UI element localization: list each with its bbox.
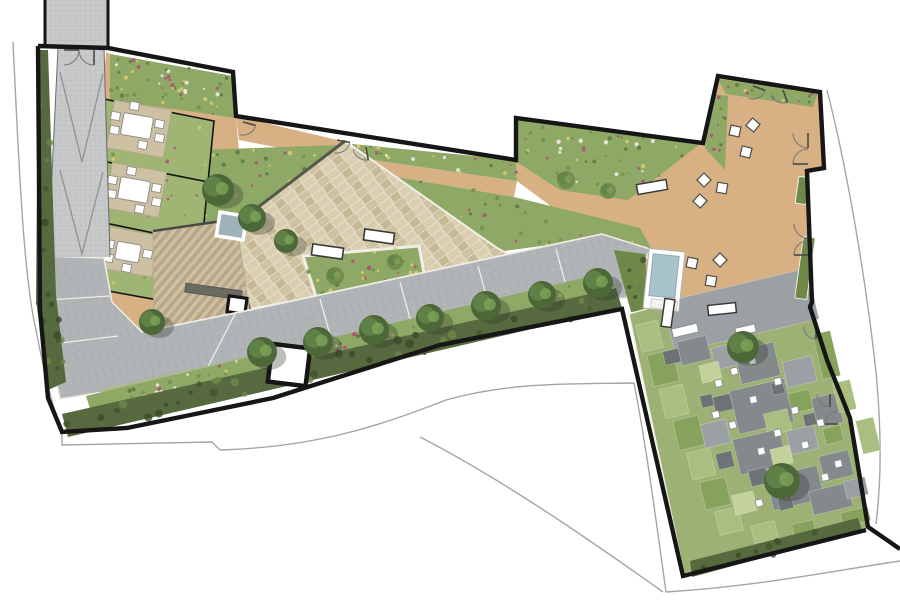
planting-speckle <box>147 79 149 81</box>
planting-speckle <box>719 107 721 109</box>
courtyard-seat-cube <box>791 406 799 414</box>
planting-speckle <box>615 172 619 176</box>
planting-speckle <box>751 89 753 91</box>
planting-speckle <box>604 140 608 144</box>
planting-speckle <box>624 147 628 151</box>
planting-speckle <box>419 181 422 184</box>
shrub-icon <box>557 171 575 189</box>
courtyard-seat-cube <box>730 367 738 375</box>
planting-speckle <box>184 91 187 94</box>
tree-canopy-highlight <box>260 345 272 357</box>
planting-speckle <box>225 76 229 80</box>
planting-speckle <box>169 79 172 82</box>
planting-speckle <box>575 181 577 183</box>
planting-speckle <box>675 146 677 148</box>
planting-speckle <box>525 151 528 154</box>
planting-speckle <box>306 269 311 274</box>
patio-tables-item <box>120 113 153 140</box>
planting-speckle <box>503 171 507 175</box>
planting-speckle <box>619 159 622 162</box>
planting-speckle <box>120 88 122 90</box>
planting-speckle <box>680 154 683 157</box>
planting-speckle <box>45 292 51 298</box>
planting-speckle <box>356 334 360 338</box>
planting-speckle <box>515 204 519 208</box>
planting-speckle <box>119 400 128 409</box>
planting-speckle <box>544 219 548 223</box>
terrace-seat-cubes-item <box>686 257 698 269</box>
planting-speckle <box>361 271 364 274</box>
tree-canopy-highlight <box>484 299 496 311</box>
planting-speckle <box>754 549 758 553</box>
planting-speckle <box>483 213 487 217</box>
planting-speckle <box>519 232 523 236</box>
patio-tables-item <box>115 241 142 263</box>
planting-speckle <box>156 383 159 386</box>
planting-speckle <box>443 156 446 159</box>
tree-canopy-highlight <box>394 258 400 264</box>
planting-speckle <box>136 60 138 62</box>
patio-tables-item <box>117 177 150 204</box>
planting-speckle <box>377 146 381 150</box>
patio-chairs-item <box>154 119 164 128</box>
planting-speckle <box>158 83 160 85</box>
planting-speckle <box>499 204 501 206</box>
patio-chairs-item <box>151 183 161 192</box>
planting-speckle <box>566 166 570 170</box>
planting-speckle <box>168 380 172 384</box>
planting-speckle <box>495 196 499 200</box>
planting-speckle <box>582 148 586 152</box>
planting-speckle <box>146 62 149 65</box>
planting-speckle <box>717 96 721 100</box>
planting-speckle <box>208 373 210 375</box>
planting-speckle <box>137 65 141 69</box>
planting-speckle <box>116 87 119 90</box>
planting-speckle <box>448 330 457 339</box>
planting-speckle <box>509 164 511 166</box>
planting-speckle <box>394 247 397 250</box>
terrace-seat-cubes-item <box>740 146 752 158</box>
planting-speckle <box>640 257 646 263</box>
planting-speckle <box>224 373 227 376</box>
planting-speckle <box>511 316 518 323</box>
patio-chairs-item <box>109 125 119 134</box>
planting-speckle <box>164 77 167 80</box>
planting-speckle <box>139 383 141 385</box>
planting-speckle <box>746 91 749 94</box>
terrace-seat-cubes-item <box>729 125 741 137</box>
planting-speckle <box>625 140 629 144</box>
patio-chairs-item <box>129 101 139 110</box>
courtyard-seat-cube <box>816 419 824 427</box>
planting-speckle <box>197 374 201 378</box>
planting-speckle <box>469 212 472 215</box>
planting-speckle <box>559 147 562 150</box>
planting-speckle <box>124 76 128 80</box>
tree-canopy-highlight <box>284 235 294 245</box>
planting-speckle <box>456 168 460 172</box>
planting-speckle <box>288 151 293 156</box>
planting-speckle <box>126 94 129 97</box>
planting-speckle <box>181 98 183 100</box>
planting-speckle <box>259 174 262 177</box>
planting-speckle <box>489 164 493 168</box>
planting-speckle <box>605 155 607 157</box>
planting-speckle <box>633 295 637 299</box>
shrub-icon <box>326 267 344 285</box>
planting-speckle <box>405 339 414 348</box>
planting-speckle <box>556 172 559 175</box>
planting-speckle <box>311 370 319 378</box>
planting-speckle <box>210 102 213 105</box>
planting-speckle <box>620 136 622 138</box>
planting-speckle <box>637 167 640 170</box>
planting-speckle <box>167 75 171 79</box>
planting-speckle <box>131 387 135 391</box>
courtyard-seat-cube <box>728 421 736 429</box>
planting-speckle <box>409 270 413 274</box>
planting-speckle <box>45 158 49 162</box>
planting-speckle <box>114 408 120 414</box>
planting-speckle <box>235 360 237 362</box>
planting-speckle <box>41 219 49 227</box>
planting-speckle <box>724 117 727 120</box>
planting-speckle <box>474 158 477 161</box>
planting-speckle <box>558 151 561 154</box>
terrace-benches-item <box>708 303 737 316</box>
planting-speckle <box>224 370 227 373</box>
planting-speckle <box>133 93 137 97</box>
planting-speckle <box>712 148 716 152</box>
patio-chairs-item <box>137 140 147 149</box>
planting-speckle <box>141 391 145 395</box>
planting-speckle <box>182 82 185 85</box>
planting-speckle <box>128 389 132 393</box>
planting-speckle <box>222 163 226 167</box>
planting-speckle <box>568 285 571 288</box>
planting-speckle <box>658 174 661 177</box>
planting-speckle <box>111 153 115 157</box>
planting-speckle <box>374 251 377 254</box>
courtyard-cell-g3 <box>715 451 734 470</box>
planting-speckle <box>203 88 205 90</box>
courtyard-cell-g3 <box>700 394 714 408</box>
planting-speckle <box>255 161 258 164</box>
patio-chairs-item <box>134 204 144 213</box>
planting-speckle <box>411 157 415 161</box>
planting-speckle <box>196 194 199 197</box>
planting-speckle <box>203 97 207 101</box>
planting-speckle <box>351 259 355 263</box>
planting-speckle <box>548 241 551 244</box>
planting-speckle <box>579 139 583 143</box>
planting-speckle <box>617 135 620 138</box>
planting-speckle <box>410 263 413 266</box>
planting-speckle <box>63 420 70 427</box>
planting-speckle <box>580 234 582 236</box>
planting-speckle <box>529 131 532 134</box>
planting-speckle <box>538 240 542 244</box>
tree-canopy-highlight <box>150 316 160 326</box>
courtyard-seat-cube <box>712 410 720 418</box>
courtyard-seat-cube <box>714 379 722 387</box>
planting-speckle <box>165 68 168 71</box>
ramp-walk-top-shape <box>45 0 108 47</box>
planting-speckle <box>55 366 59 370</box>
planting-speckle <box>515 171 518 174</box>
planting-speckle <box>218 365 221 368</box>
planting-speckle <box>631 241 633 243</box>
planting-speckle <box>212 113 214 115</box>
planting-speckle <box>640 271 645 276</box>
planting-speckle <box>166 179 168 181</box>
planting-speckle <box>412 326 415 329</box>
planting-speckle <box>641 164 645 168</box>
planting-speckle <box>54 332 62 340</box>
courtyard-seat-cube <box>834 460 842 468</box>
planting-speckle <box>719 143 722 146</box>
planting-speckle <box>589 131 591 133</box>
planting-speckle <box>251 185 253 187</box>
planting-speckle <box>42 248 46 252</box>
planting-speckle <box>541 138 546 143</box>
planting-speckle <box>264 157 268 161</box>
planting-speckle <box>651 139 655 143</box>
planting-speckle <box>173 147 176 150</box>
planting-speckle <box>316 279 319 282</box>
planting-speckle <box>379 153 381 155</box>
planting-speckle <box>592 160 596 164</box>
tree-canopy-highlight <box>428 311 439 322</box>
planting-speckle <box>183 215 185 217</box>
planting-speckle <box>220 93 223 96</box>
terrace-seat-cubes-item <box>705 275 717 287</box>
tree-canopy-highlight <box>372 323 384 335</box>
planting-speckle <box>366 357 372 363</box>
planting-speckle <box>43 186 49 192</box>
planting-speckle <box>717 124 719 126</box>
planting-speckle <box>167 198 170 201</box>
planting-speckle <box>766 543 773 550</box>
planting-speckle <box>352 332 356 336</box>
planting-speckle <box>641 180 644 183</box>
planting-speckle <box>132 58 136 62</box>
planting-speckle <box>357 144 361 148</box>
patio-chairs-item <box>151 197 161 206</box>
planting-speckle <box>621 172 625 176</box>
planting-speckle <box>215 92 219 96</box>
planting-speckle <box>385 154 388 157</box>
planting-speckle <box>375 151 378 154</box>
planting-speckle <box>556 140 561 145</box>
planting-speckle <box>204 164 206 166</box>
planting-speckle <box>197 381 203 387</box>
patio-chairs-item <box>121 263 131 272</box>
planting-speckle <box>468 209 471 212</box>
planting-speckle <box>209 388 217 396</box>
planting-speckle <box>484 203 487 206</box>
planting-speckle <box>109 88 113 92</box>
tree-canopy-highlight <box>741 339 754 352</box>
planting-speckle <box>412 332 419 339</box>
planting-speckle <box>235 150 240 155</box>
planting-speckle <box>164 403 168 407</box>
planting-speckle <box>98 414 105 421</box>
planting-speckle <box>284 151 287 154</box>
planting-speckle <box>218 82 222 86</box>
planting-speckle <box>596 183 599 186</box>
planting-speckle <box>216 106 218 108</box>
planting-speckle <box>212 154 215 157</box>
planting-speckle <box>627 172 629 174</box>
planting-speckle <box>414 265 417 268</box>
terrace-seat-cubes-item <box>716 182 728 194</box>
courtyard-seat-cube <box>774 377 782 385</box>
courtyard-cell-g3 <box>803 412 817 426</box>
patio-chairs-item <box>110 111 120 120</box>
site-plan-stage: rooftop-garden-landscape-site-plan <box>0 0 900 600</box>
planting-speckle <box>808 101 811 104</box>
tree-canopy-highlight <box>607 187 613 193</box>
planting-speckle <box>252 149 255 152</box>
planting-speckle <box>736 553 741 558</box>
planting-speckle <box>377 270 379 272</box>
planting-speckle <box>634 278 639 283</box>
planting-speckle <box>397 272 399 274</box>
planting-speckle <box>302 155 305 158</box>
planting-speckle <box>265 172 268 175</box>
planting-speckle <box>120 94 124 98</box>
tree-canopy-highlight <box>316 335 328 347</box>
tree-canopy-highlight <box>250 211 261 222</box>
tree-canopy-highlight <box>540 288 551 299</box>
planting-speckle <box>188 391 192 395</box>
planting-speckle <box>165 160 169 164</box>
planting-speckle <box>56 338 61 343</box>
planting-speckle <box>143 277 145 279</box>
ramp-walk-top <box>45 0 108 47</box>
planting-speckle <box>541 126 545 130</box>
planting-speckle <box>524 211 527 214</box>
planting-speckle <box>782 99 785 102</box>
planting-speckle <box>56 317 62 323</box>
planting-speckle <box>627 285 632 290</box>
planting-speckle <box>188 67 191 70</box>
planting-speckle <box>515 240 518 243</box>
planting-speckle <box>171 195 173 197</box>
planting-speckle <box>165 93 168 96</box>
planting-speckle <box>471 188 475 192</box>
planting-speckle <box>116 58 119 61</box>
patio-chairs-item <box>126 166 136 175</box>
planting-speckle <box>61 359 66 364</box>
planting-speckle <box>566 137 569 140</box>
planting-speckle <box>162 96 164 98</box>
planting-speckle <box>343 346 347 350</box>
planting-speckle <box>362 277 365 280</box>
planting-speckle <box>588 307 592 311</box>
planting-speckle <box>112 157 116 161</box>
planting-speckle <box>269 165 271 167</box>
planting-speckle <box>718 149 721 152</box>
planting-speckle <box>242 392 247 397</box>
planting-speckle <box>637 145 641 149</box>
tree-canopy-highlight <box>216 182 229 195</box>
tree-canopy-highlight <box>565 176 572 183</box>
planting-speckle <box>585 160 588 163</box>
planting-speckle <box>180 94 182 96</box>
planting-speckle <box>129 60 132 63</box>
planting-speckle <box>710 134 713 137</box>
planting-speckle <box>175 401 180 406</box>
planting-speckle <box>349 351 355 357</box>
shrub-icon <box>387 254 403 270</box>
planting-speckle <box>798 100 800 102</box>
pool-item <box>649 254 679 298</box>
planting-speckle <box>808 95 811 98</box>
patio-chairs-item <box>154 133 164 142</box>
planting-speckle <box>117 71 120 74</box>
planting-speckle <box>571 137 573 139</box>
planting-speckle <box>775 539 781 545</box>
courtyard-seat-cube <box>757 447 765 455</box>
planting-speckle <box>576 158 579 161</box>
planting-speckle <box>546 157 549 160</box>
planting-speckle <box>197 105 201 109</box>
planting-speckle <box>811 529 817 535</box>
planting-speckle <box>46 139 53 146</box>
planting-speckle <box>161 74 164 77</box>
tree-canopy-highlight <box>596 276 608 288</box>
planting-speckle <box>131 70 134 73</box>
courtyard-seat-cube <box>749 395 757 403</box>
planting-speckle <box>313 154 316 157</box>
planting-speckle <box>367 266 372 271</box>
patio-chairs-item <box>107 175 117 184</box>
planting-speckle <box>216 87 219 90</box>
planting-speckle <box>255 150 257 152</box>
planting-speckle <box>162 87 164 89</box>
planting-speckle <box>49 302 54 307</box>
tree-canopy-highlight <box>334 272 341 279</box>
patio-chairs-item <box>142 249 152 258</box>
courtyard-seat-cube <box>773 429 781 437</box>
planting-speckle <box>727 86 730 89</box>
planting-speckle <box>735 83 739 87</box>
ramp-walk-lower-shape <box>48 48 110 257</box>
planting-speckle <box>231 378 239 386</box>
planting-speckle <box>559 238 562 241</box>
planting-speckle <box>112 281 115 284</box>
planting-speckle <box>115 63 118 66</box>
planting-speckle <box>241 159 245 163</box>
planting-speckle <box>480 226 484 230</box>
ramp-walk-lower <box>48 48 110 257</box>
shrub-icon <box>600 183 616 199</box>
planting-speckle <box>641 170 643 172</box>
planting-speckle <box>432 155 434 157</box>
site-plan-canvas <box>0 0 900 600</box>
planting-speckle <box>461 216 463 218</box>
planting-speckle <box>369 146 371 148</box>
courtyard-seat-cube <box>801 441 809 449</box>
planting-speckle <box>161 101 164 104</box>
planting-speckle <box>131 396 133 398</box>
tree-canopy-highlight <box>779 472 793 486</box>
planting-speckle <box>144 413 152 421</box>
planting-speckle <box>215 377 221 383</box>
